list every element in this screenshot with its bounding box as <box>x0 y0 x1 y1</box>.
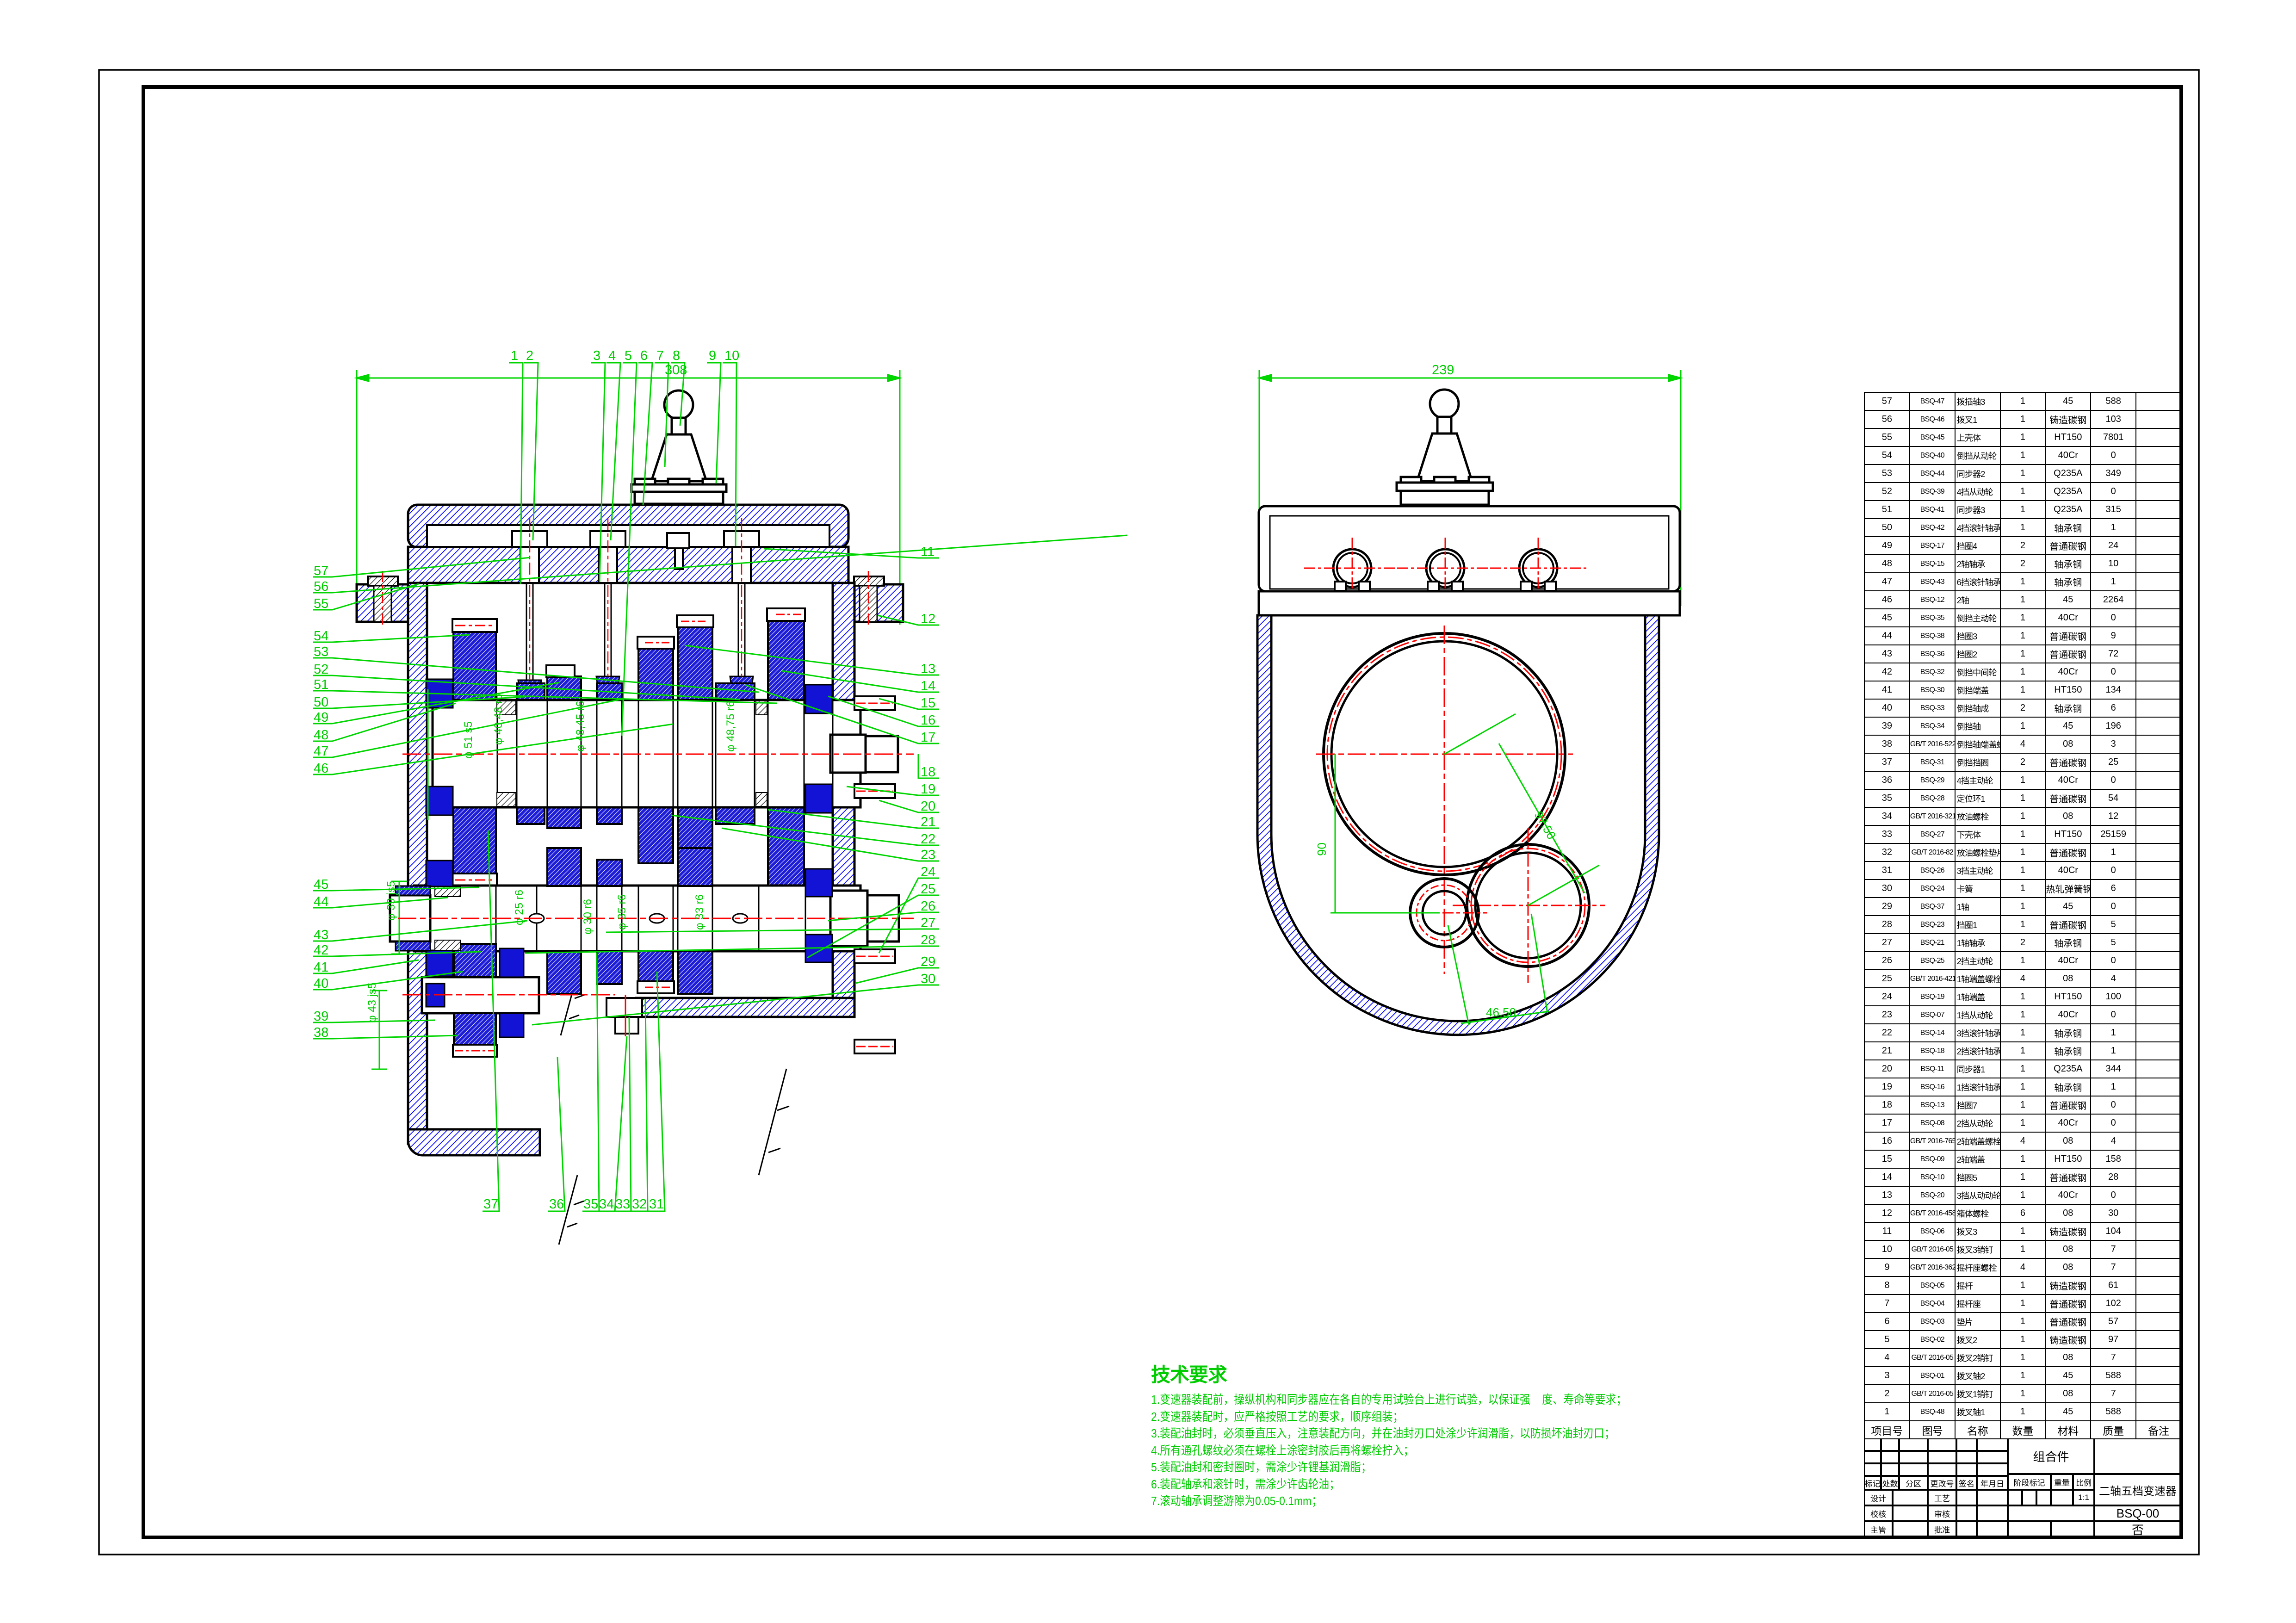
svg-text:15: 15 <box>921 696 935 711</box>
svg-text:47: 47 <box>314 744 328 759</box>
svg-text:51: 51 <box>314 677 328 692</box>
svg-text:12: 12 <box>921 612 935 626</box>
svg-text:48: 48 <box>314 728 328 743</box>
svg-text:5: 5 <box>625 348 632 363</box>
svg-text:19: 19 <box>921 782 935 797</box>
svg-text:26: 26 <box>921 899 935 914</box>
svg-text:30: 30 <box>921 972 935 986</box>
svg-text:33: 33 <box>615 1197 630 1212</box>
svg-text:23: 23 <box>921 848 935 862</box>
svg-text:φ 33 r6: φ 33 r6 <box>693 894 706 930</box>
svg-text:27: 27 <box>921 916 935 930</box>
svg-text:49: 49 <box>314 710 328 725</box>
svg-text:21: 21 <box>921 815 935 830</box>
svg-text:37: 37 <box>483 1197 498 1212</box>
svg-text:8: 8 <box>673 348 680 363</box>
svg-text:46: 46 <box>314 761 328 776</box>
svg-text:55: 55 <box>314 596 328 611</box>
svg-text:28: 28 <box>921 933 935 948</box>
svg-text:14: 14 <box>921 679 935 694</box>
svg-text:40: 40 <box>314 976 328 991</box>
svg-text:31: 31 <box>649 1197 664 1212</box>
svg-text:φ 40,48 r6: φ 40,48 r6 <box>492 694 505 745</box>
svg-text:φ 43 js5: φ 43 js5 <box>366 983 378 1022</box>
svg-text:38: 38 <box>314 1025 328 1040</box>
svg-text:13: 13 <box>921 662 935 676</box>
svg-text:17: 17 <box>921 730 935 745</box>
svg-text:35: 35 <box>583 1197 598 1212</box>
svg-text:39: 39 <box>314 1009 328 1024</box>
svg-text:45: 45 <box>314 877 328 892</box>
svg-text:3: 3 <box>593 348 600 363</box>
svg-text:4: 4 <box>608 348 616 363</box>
svg-text:50: 50 <box>314 695 328 710</box>
svg-text:46.50: 46.50 <box>1486 1005 1516 1019</box>
svg-text:2: 2 <box>526 348 533 363</box>
svg-text:56: 56 <box>314 579 328 594</box>
svg-text:41: 41 <box>314 960 328 975</box>
svg-text:7: 7 <box>656 348 664 363</box>
svg-text:36: 36 <box>549 1197 564 1212</box>
svg-text:53: 53 <box>314 644 328 659</box>
svg-text:22: 22 <box>921 832 935 847</box>
svg-text:29: 29 <box>921 954 935 969</box>
svg-text:90: 90 <box>1315 842 1329 856</box>
svg-text:32: 32 <box>632 1197 647 1212</box>
svg-text:57: 57 <box>314 564 328 578</box>
svg-text:42: 42 <box>314 943 328 958</box>
svg-text:54: 54 <box>314 629 328 644</box>
svg-text:φ 35 r6: φ 35 r6 <box>616 894 628 930</box>
svg-text:18: 18 <box>921 765 935 780</box>
svg-text:1: 1 <box>511 348 518 363</box>
svg-text:9: 9 <box>709 348 716 363</box>
svg-text:20: 20 <box>921 799 935 814</box>
svg-text:16: 16 <box>921 713 935 728</box>
svg-text:24: 24 <box>921 865 935 880</box>
svg-text:43: 43 <box>314 928 328 942</box>
svg-text:φ 25 r6: φ 25 r6 <box>513 890 526 925</box>
svg-text:97.50: 97.50 <box>1532 809 1559 842</box>
svg-text:φ 48,75 r6: φ 48,75 r6 <box>724 701 737 752</box>
svg-text:φ 39 js5: φ 39 js5 <box>385 881 397 921</box>
svg-text:34: 34 <box>599 1197 614 1212</box>
svg-text:11: 11 <box>921 545 934 559</box>
svg-text:25: 25 <box>921 882 935 897</box>
svg-text:10: 10 <box>724 348 739 363</box>
svg-text:6: 6 <box>640 348 648 363</box>
svg-text:239: 239 <box>1432 363 1454 378</box>
svg-text:44: 44 <box>314 894 328 909</box>
svg-text:52: 52 <box>314 662 328 677</box>
svg-text:φ 30 r6: φ 30 r6 <box>582 899 594 935</box>
